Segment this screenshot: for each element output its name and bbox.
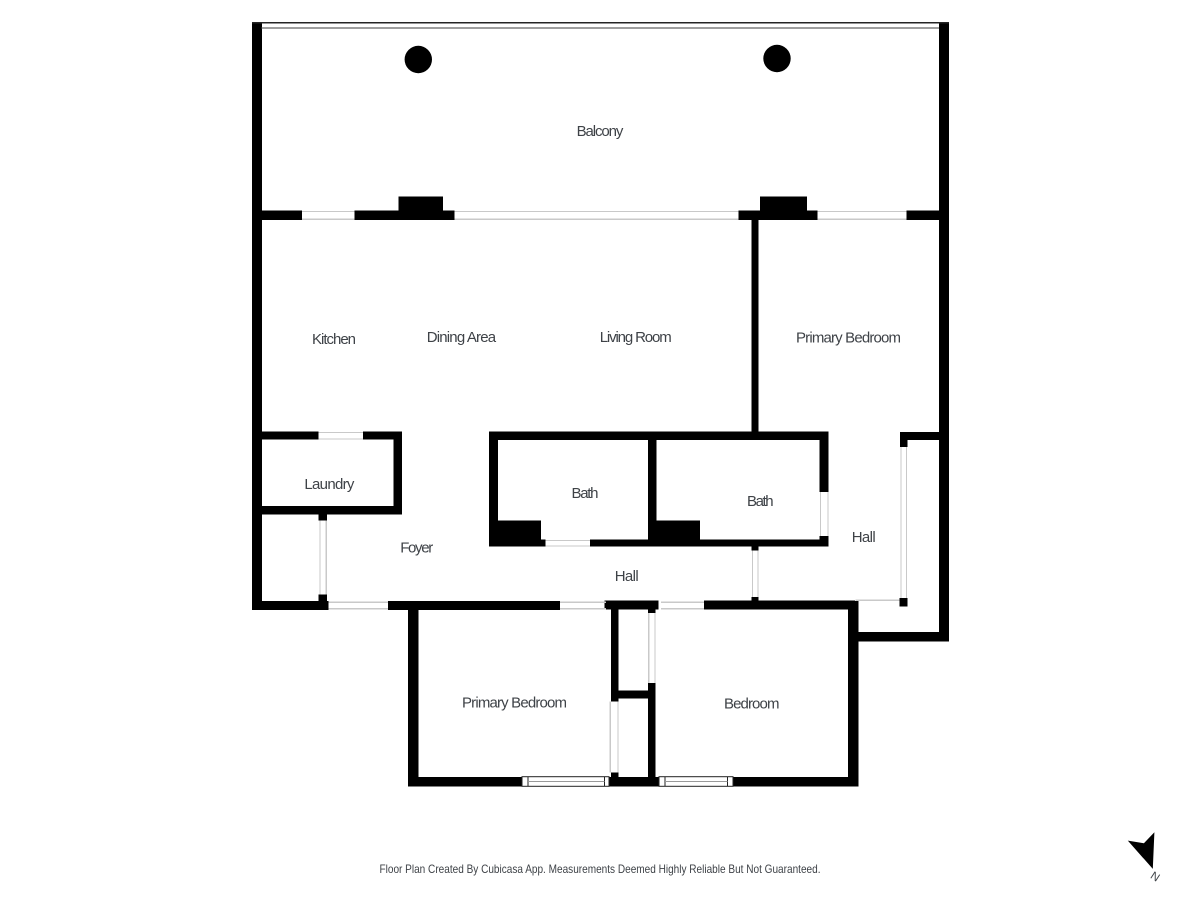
svg-text:Foyer: Foyer xyxy=(400,540,433,557)
svg-text:Primary Bedroom: Primary Bedroom xyxy=(796,330,901,347)
svg-text:Bath: Bath xyxy=(572,485,599,502)
svg-text:Living Room: Living Room xyxy=(600,329,672,346)
svg-text:Primary Bedroom: Primary Bedroom xyxy=(462,695,567,712)
svg-text:Hall: Hall xyxy=(852,529,876,546)
svg-text:Balcony: Balcony xyxy=(577,123,624,140)
svg-text:Kitchen: Kitchen xyxy=(312,331,356,348)
svg-text:Laundry: Laundry xyxy=(304,476,355,493)
svg-text:Bedroom: Bedroom xyxy=(724,695,780,712)
svg-text:Floor Plan Created By Cubicasa: Floor Plan Created By Cubicasa App. Meas… xyxy=(380,862,821,876)
svg-text:Hall: Hall xyxy=(615,568,639,585)
svg-text:Dining Area: Dining Area xyxy=(427,329,497,346)
svg-text:Bath: Bath xyxy=(747,493,774,510)
